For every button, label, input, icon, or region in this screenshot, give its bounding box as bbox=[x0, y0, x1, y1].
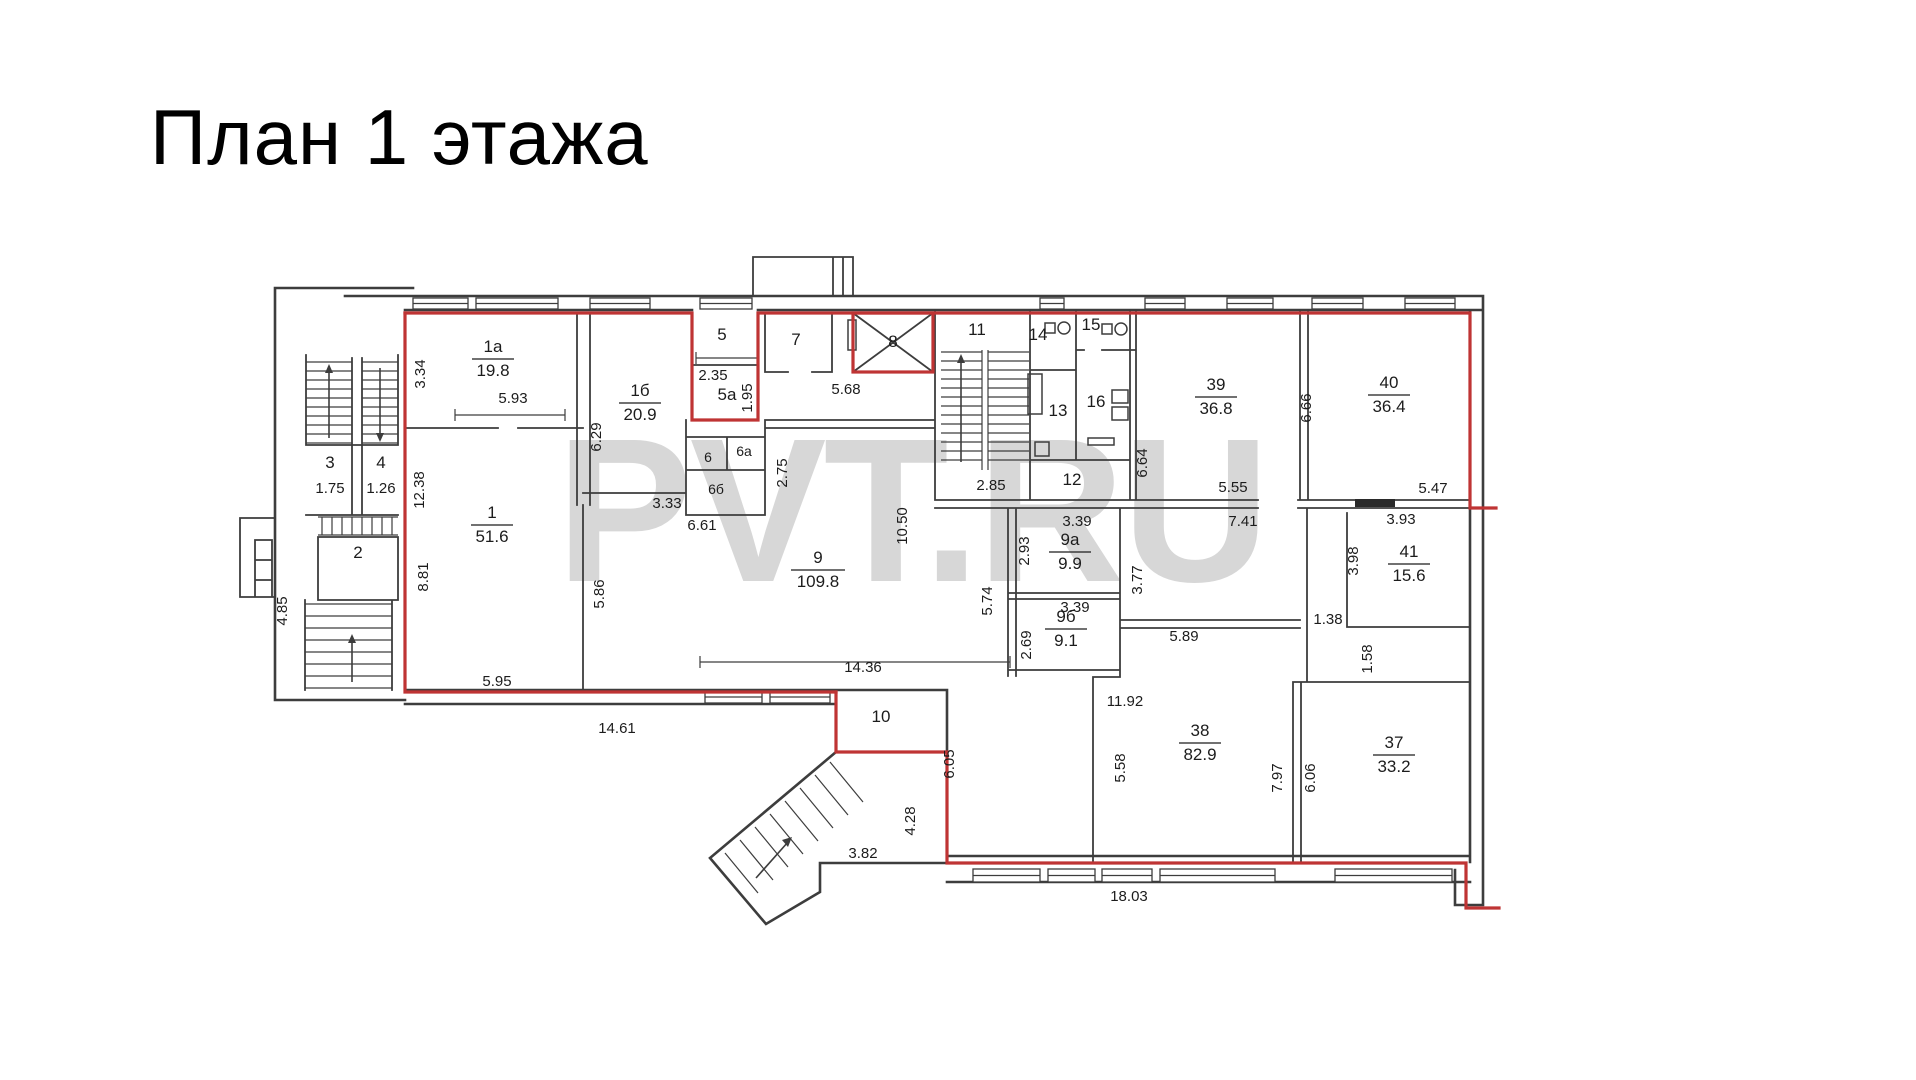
dimension-label: 4.28 bbox=[902, 806, 919, 835]
room-label: 41.26 bbox=[366, 453, 395, 497]
window bbox=[476, 298, 558, 309]
room-label: 9109.8 bbox=[791, 548, 845, 591]
room-number: 3 bbox=[325, 453, 334, 472]
staircase-treads bbox=[305, 350, 1029, 893]
room-label: 6 bbox=[704, 449, 712, 465]
dimension-label: 6.66 bbox=[1298, 393, 1315, 422]
room-area: 33.2 bbox=[1377, 757, 1410, 776]
dimension-label: 2.93 bbox=[1016, 536, 1033, 565]
dimension-label: 6.64 bbox=[1134, 448, 1151, 477]
toilet-icon bbox=[1102, 323, 1127, 335]
room-label: 13 bbox=[1049, 401, 1068, 420]
room-number: 16 bbox=[1087, 392, 1106, 411]
room-label: 15 bbox=[1082, 315, 1101, 334]
dimension-label: 12.38 bbox=[411, 471, 428, 509]
window bbox=[700, 298, 752, 309]
dimension-label: 7.97 bbox=[1269, 763, 1286, 792]
room-label: 4115.6 bbox=[1388, 542, 1430, 585]
dimension-label: 6.29 bbox=[588, 422, 605, 451]
stair-tread bbox=[740, 840, 773, 880]
room-label: 1б20.9 bbox=[619, 381, 661, 424]
dimension-label: 3.33 bbox=[652, 495, 681, 512]
page-title: План 1 этажа bbox=[150, 92, 649, 183]
window bbox=[413, 298, 468, 309]
room-number: 2 bbox=[353, 543, 362, 562]
dimension-label: 6.05 bbox=[941, 749, 958, 778]
room-label: 3733.2 bbox=[1373, 733, 1415, 776]
room-area: 9.1 bbox=[1054, 631, 1078, 650]
dimension-label: 3.34 bbox=[412, 359, 429, 388]
room-number: 11 bbox=[968, 320, 986, 339]
window bbox=[1312, 298, 1363, 309]
dimension-label: 18.03 bbox=[1110, 888, 1148, 905]
dimension-label: 5.58 bbox=[1112, 753, 1129, 782]
room-label: 31.75 bbox=[315, 453, 344, 497]
room-number: 9а bbox=[1061, 530, 1080, 549]
window bbox=[1227, 298, 1273, 309]
room-label: 5а bbox=[718, 385, 737, 404]
room-number: 37 bbox=[1385, 733, 1404, 752]
dimension-label: 14.36 bbox=[844, 659, 882, 676]
window bbox=[1048, 869, 1095, 882]
dimension-label: 3.77 bbox=[1129, 565, 1146, 594]
dimension-label: 2.69 bbox=[1018, 630, 1035, 659]
dimension-labels: 3.345.9312.388.814.855.9514.616.293.336.… bbox=[274, 359, 1448, 905]
windows bbox=[413, 298, 1455, 882]
dimension-label: 10.50 bbox=[894, 507, 911, 545]
dimension-label: 1.38 bbox=[1313, 611, 1342, 628]
room-labels: 1а19.81б20.9151.6231.7541.2655а66а6б7891… bbox=[315, 315, 1430, 776]
stair-tread bbox=[725, 853, 758, 893]
dimension-label: 3.82 bbox=[848, 845, 877, 862]
dimension-label: 5.89 bbox=[1169, 628, 1198, 645]
dimension-label: 6.61 bbox=[687, 517, 716, 534]
dimension-label: 5.47 bbox=[1418, 480, 1447, 497]
room-number: 5а bbox=[718, 385, 737, 404]
room-area: 9.9 bbox=[1058, 554, 1082, 573]
room-number: 5 bbox=[717, 325, 726, 344]
window bbox=[1160, 869, 1275, 882]
room-number: 39 bbox=[1207, 375, 1226, 394]
dimension-label: 2.35 bbox=[698, 367, 727, 384]
room-area: 36.4 bbox=[1372, 397, 1405, 416]
stair-tread bbox=[830, 762, 863, 802]
room-number: 6 bbox=[704, 449, 712, 465]
stair-arrow bbox=[325, 354, 965, 878]
room-label: 6б bbox=[708, 481, 724, 497]
dimension-label: 1.58 bbox=[1359, 644, 1376, 673]
dimension-label: 7.41 bbox=[1228, 513, 1257, 530]
stair-tread bbox=[770, 814, 803, 854]
room-label: 12 bbox=[1063, 470, 1082, 489]
room-area: 51.6 bbox=[475, 527, 508, 546]
room-label: 3882.9 bbox=[1179, 721, 1221, 764]
dimension-label: 5.86 bbox=[591, 579, 608, 608]
dimension-label: 2.75 bbox=[774, 458, 791, 487]
room-number: 10 bbox=[872, 707, 891, 726]
dimension-label: 3.98 bbox=[1345, 546, 1362, 575]
room-label: 10 bbox=[872, 707, 891, 726]
dimension-label: 1.95 bbox=[739, 383, 756, 412]
room-number: 4 bbox=[376, 453, 385, 472]
room-label: 4036.4 bbox=[1368, 373, 1410, 416]
toilet-icon bbox=[1045, 322, 1070, 334]
stair-tread bbox=[800, 788, 833, 828]
room-label: 16 bbox=[1087, 392, 1106, 411]
room-area: 1.75 bbox=[315, 480, 344, 497]
stair-tread bbox=[785, 801, 818, 841]
room-number: 40 bbox=[1380, 373, 1399, 392]
window bbox=[1040, 298, 1064, 309]
window bbox=[1335, 869, 1452, 882]
dimension-label: 5.95 bbox=[482, 673, 511, 690]
room-label: 8 bbox=[888, 332, 897, 351]
window bbox=[1102, 869, 1152, 882]
dimension-label: 3.93 bbox=[1386, 511, 1415, 528]
room-label: 9а9.9 bbox=[1049, 530, 1091, 573]
room-number: 8 bbox=[888, 332, 897, 351]
dimension-label: 6.06 bbox=[1302, 763, 1319, 792]
room-number: 13 bbox=[1049, 401, 1068, 420]
room-area: 19.8 bbox=[476, 361, 509, 380]
room-label: 14 bbox=[1029, 325, 1048, 344]
room-label: 151.6 bbox=[471, 503, 513, 546]
room-area: 20.9 bbox=[623, 405, 656, 424]
room-number: 12 bbox=[1063, 470, 1082, 489]
room-area: 15.6 bbox=[1392, 566, 1425, 585]
dimension-label: 8.81 bbox=[415, 562, 432, 591]
room-number: 6б bbox=[708, 481, 724, 497]
room-label: 6а bbox=[736, 443, 752, 459]
window bbox=[973, 869, 1040, 882]
room-number: 7 bbox=[791, 330, 800, 349]
room-number: 9 bbox=[813, 548, 822, 567]
dimension-label: 11.92 bbox=[1107, 693, 1143, 710]
room-number: 1а bbox=[484, 337, 503, 356]
room-area: 82.9 bbox=[1183, 745, 1216, 764]
stair-tread bbox=[815, 775, 848, 815]
dimension-label: 14.61 bbox=[598, 720, 636, 737]
dimension-label: 3.39 bbox=[1060, 599, 1089, 616]
room-number: 38 bbox=[1191, 721, 1210, 740]
dimension-label: 3.39 bbox=[1062, 513, 1091, 530]
window bbox=[1145, 298, 1185, 309]
room-number: 6а bbox=[736, 443, 752, 459]
dimension-label: 5.55 bbox=[1218, 479, 1247, 496]
room-label: 3936.8 bbox=[1195, 375, 1237, 418]
room-number: 14 bbox=[1029, 325, 1048, 344]
room-number: 15 bbox=[1082, 315, 1101, 334]
room-label: 2 bbox=[353, 543, 362, 562]
room-area: 36.8 bbox=[1199, 399, 1232, 418]
dimension-label: 5.74 bbox=[979, 586, 996, 615]
door-header bbox=[1355, 499, 1395, 507]
dimension-label: 5.68 bbox=[831, 381, 860, 398]
room-number: 41 bbox=[1400, 542, 1419, 561]
room-label: 7 bbox=[791, 330, 800, 349]
window bbox=[590, 298, 650, 309]
room-area: 1.26 bbox=[366, 480, 395, 497]
room-label: 1а19.8 bbox=[472, 337, 514, 380]
dimension-label: 5.93 bbox=[498, 390, 527, 407]
room-number: 1 bbox=[487, 503, 496, 522]
dimension-label: 2.85 bbox=[976, 477, 1005, 494]
room-label: 11 bbox=[968, 320, 986, 339]
room-number: 1б bbox=[630, 381, 649, 400]
dimension-label: 4.85 bbox=[274, 596, 291, 625]
window bbox=[1405, 298, 1455, 309]
room-area: 109.8 bbox=[797, 572, 840, 591]
room-label: 5 bbox=[717, 325, 726, 344]
